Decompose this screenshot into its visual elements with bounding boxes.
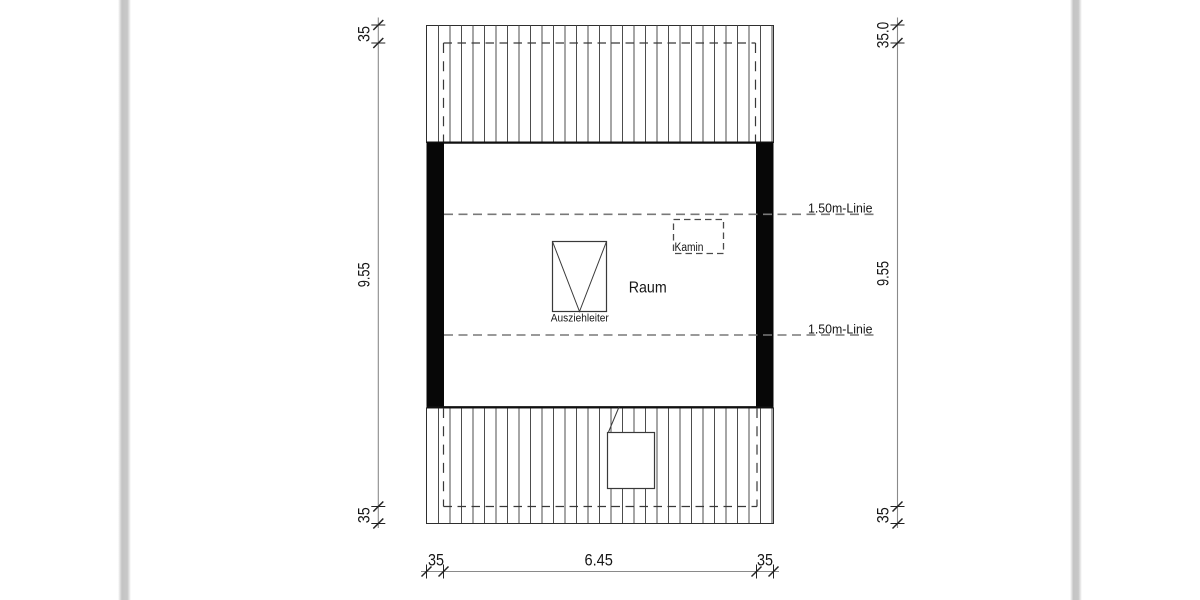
svg-text:9.55: 9.55 bbox=[355, 262, 374, 287]
svg-text:Ausziehleiter: Ausziehleiter bbox=[551, 313, 609, 325]
svg-text:35.0: 35.0 bbox=[874, 22, 893, 49]
svg-text:35: 35 bbox=[757, 551, 773, 570]
svg-text:35: 35 bbox=[355, 26, 374, 42]
svg-text:35: 35 bbox=[874, 507, 893, 523]
svg-text:Raum: Raum bbox=[629, 280, 667, 297]
svg-text:9.55: 9.55 bbox=[874, 261, 893, 286]
svg-text:35: 35 bbox=[355, 507, 374, 523]
svg-text:6.45: 6.45 bbox=[584, 551, 613, 570]
svg-text:Kamin: Kamin bbox=[675, 242, 704, 254]
svg-text:35: 35 bbox=[428, 551, 444, 570]
svg-text:1.50m-Linie: 1.50m-Linie bbox=[808, 322, 873, 337]
svg-text:1.50m-Linie: 1.50m-Linie bbox=[808, 201, 873, 216]
